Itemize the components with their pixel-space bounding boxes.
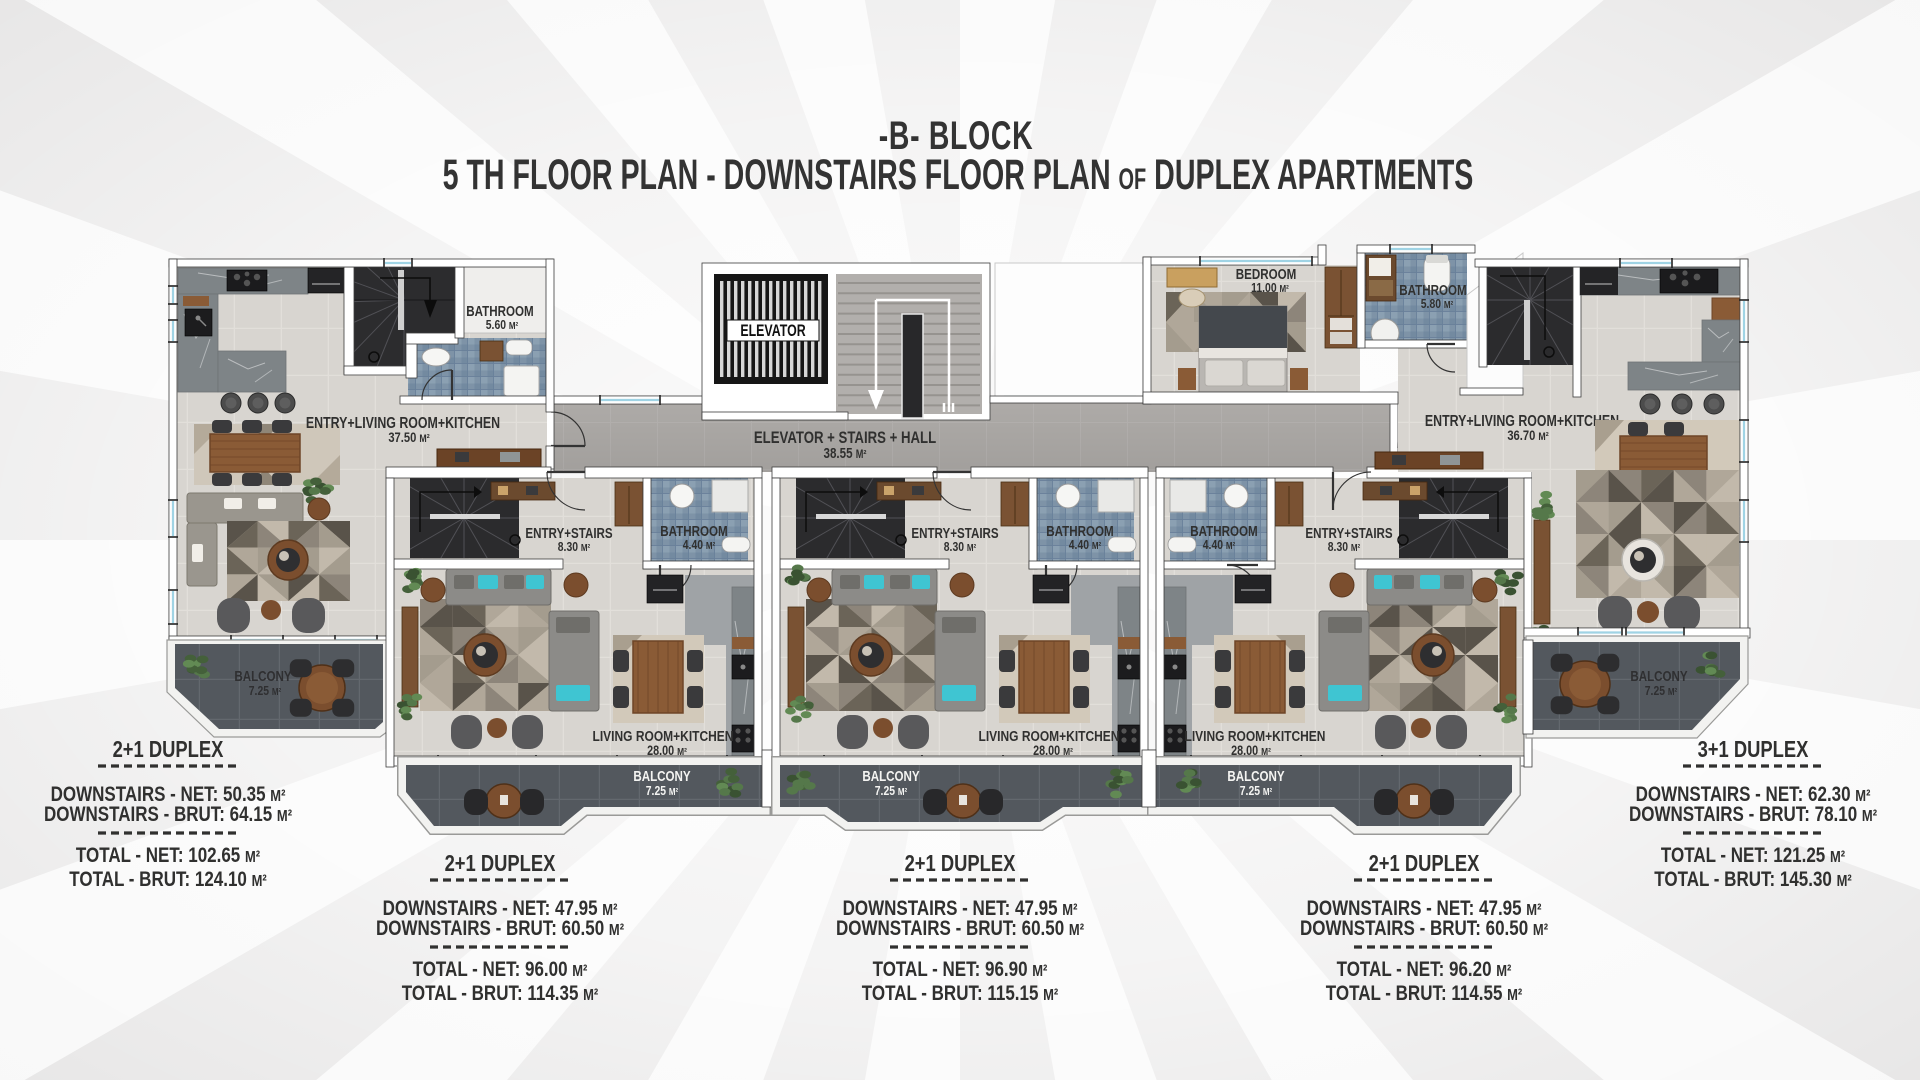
svg-text:TOTAL - BRUT: 114.55 M²: TOTAL - BRUT: 114.55 M² [1326,982,1523,1005]
svg-text:BALCONY: BALCONY [633,768,691,785]
svg-text:BEDROOM: BEDROOM [1236,266,1297,283]
svg-text:BATHROOM: BATHROOM [660,523,727,540]
svg-text:ENTRY+STAIRS: ENTRY+STAIRS [1305,525,1393,542]
svg-text:BATHROOM: BATHROOM [1046,523,1113,540]
svg-text:4.40 M²: 4.40 M² [683,538,715,552]
svg-text:BALCONY: BALCONY [862,768,920,785]
svg-text:7.25 M²: 7.25 M² [1645,684,1677,698]
svg-text:BALCONY: BALCONY [234,668,292,685]
svg-text:7.25 M²: 7.25 M² [249,684,281,698]
svg-text:LIVING ROOM+KITCHEN: LIVING ROOM+KITCHEN [593,728,734,745]
svg-text:DOWNSTAIRS - BRUT: 60.50 M²: DOWNSTAIRS - BRUT: 60.50 M² [376,917,624,940]
svg-text:ENTRY+STAIRS: ENTRY+STAIRS [525,525,613,542]
svg-text:DOWNSTAIRS - BRUT: 60.50 M²: DOWNSTAIRS - BRUT: 60.50 M² [1300,917,1548,940]
svg-text:8.30 M²: 8.30 M² [558,540,590,554]
svg-text:TOTAL - BRUT: 145.30 M²: TOTAL - BRUT: 145.30 M² [1654,868,1852,891]
svg-text:TOTAL - NET: 96.20 M²: TOTAL - NET: 96.20 M² [1337,958,1512,981]
svg-text:TOTAL - NET: 96.00 M²: TOTAL - NET: 96.00 M² [413,958,588,981]
svg-text:5.80 M²: 5.80 M² [1421,297,1453,311]
svg-text:DOWNSTAIRS - BRUT: 60.50 M²: DOWNSTAIRS - BRUT: 60.50 M² [836,917,1084,940]
svg-text:2+1 DUPLEX: 2+1 DUPLEX [445,851,556,876]
svg-text:7.25 M²: 7.25 M² [1240,784,1272,798]
svg-text:TOTAL - BRUT: 114.35 M²: TOTAL - BRUT: 114.35 M² [402,982,599,1005]
svg-text:4.40 M²: 4.40 M² [1069,538,1101,552]
svg-text:BALCONY: BALCONY [1227,768,1285,785]
svg-text:TOTAL - BRUT: 115.15 M²: TOTAL - BRUT: 115.15 M² [862,982,1059,1005]
svg-text:3+1 DUPLEX: 3+1 DUPLEX [1698,737,1809,762]
svg-text:DOWNSTAIRS - BRUT: 78.10 M²: DOWNSTAIRS - BRUT: 78.10 M² [1629,803,1877,826]
svg-text:LIVING ROOM+KITCHEN: LIVING ROOM+KITCHEN [979,728,1120,745]
svg-text:BATHROOM: BATHROOM [1399,282,1466,299]
svg-text:7.25 M²: 7.25 M² [875,784,907,798]
svg-text:TOTAL - BRUT: 124.10 M²: TOTAL - BRUT: 124.10 M² [69,868,267,891]
svg-text:8.30 M²: 8.30 M² [944,540,976,554]
svg-text:2+1 DUPLEX: 2+1 DUPLEX [905,851,1016,876]
svg-text:DOWNSTAIRS - BRUT: 64.15 M²: DOWNSTAIRS - BRUT: 64.15 M² [44,803,292,826]
svg-text:LIVING ROOM+KITCHEN: LIVING ROOM+KITCHEN [1185,728,1326,745]
svg-text:BALCONY: BALCONY [1630,668,1688,685]
svg-text:TOTAL - NET: 102.65 M²: TOTAL - NET: 102.65 M² [76,844,260,867]
svg-text:TOTAL - NET: 96.90 M²: TOTAL - NET: 96.90 M² [873,958,1048,981]
svg-text:7.25 M²: 7.25 M² [646,784,678,798]
svg-text:BATHROOM: BATHROOM [1190,523,1257,540]
svg-text:4.40 M²: 4.40 M² [1203,538,1235,552]
svg-text:5.60 M²: 5.60 M² [486,318,518,332]
svg-text:ENTRY+LIVING ROOM+KITCHEN: ENTRY+LIVING ROOM+KITCHEN [306,414,500,432]
svg-text:2+1 DUPLEX: 2+1 DUPLEX [1369,851,1480,876]
svg-text:11.00 M²: 11.00 M² [1251,281,1289,295]
svg-text:ELEVATOR: ELEVATOR [740,322,806,340]
svg-text:ENTRY+LIVING ROOM+KITCHEN: ENTRY+LIVING ROOM+KITCHEN [1425,412,1619,430]
svg-text:ENTRY+STAIRS: ENTRY+STAIRS [911,525,999,542]
svg-text:8.30 M²: 8.30 M² [1328,540,1360,554]
svg-text:5 TH FLOOR PLAN - DOWNSTAIRS F: 5 TH FLOOR PLAN - DOWNSTAIRS FLOOR PLAN … [443,150,1474,198]
svg-text:BATHROOM: BATHROOM [466,303,533,320]
svg-text:2+1 DUPLEX: 2+1 DUPLEX [113,737,224,762]
svg-text:TOTAL - NET: 121.25 M²: TOTAL - NET: 121.25 M² [1661,844,1845,867]
